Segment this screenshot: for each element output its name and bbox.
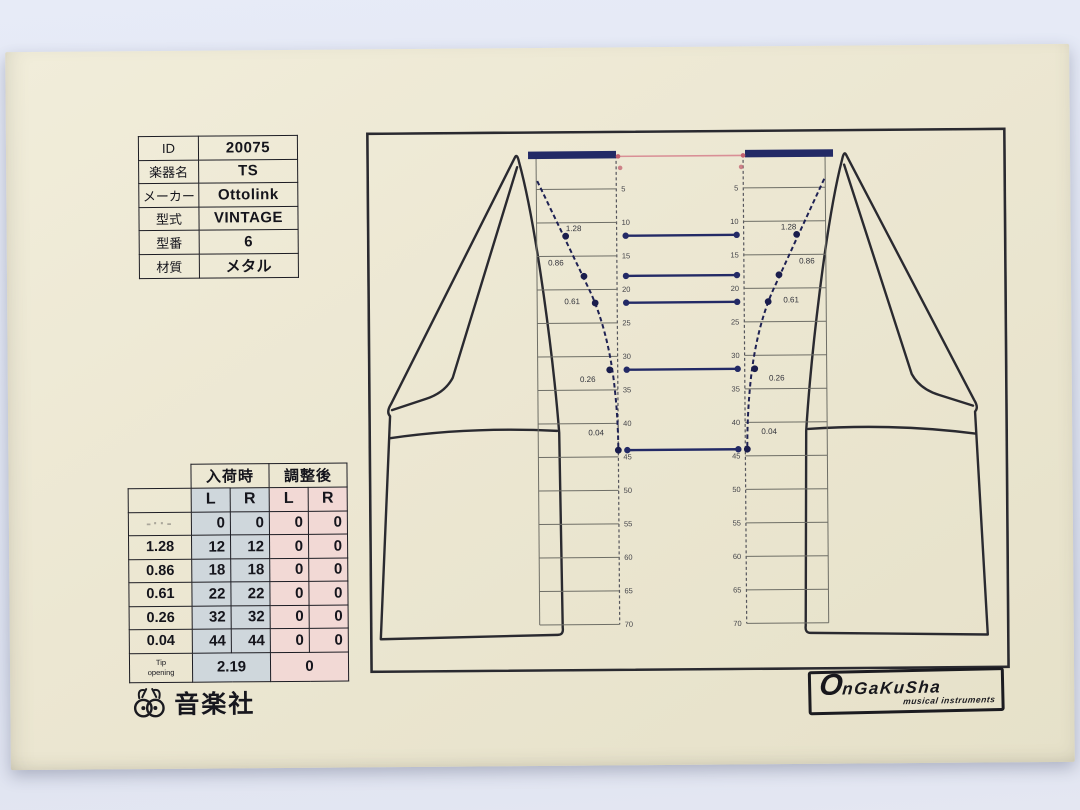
right-ruler-rung (746, 489, 828, 490)
left-gauge-value-label: 0.61 (564, 297, 580, 306)
left-ruler-tick-label: 60 (624, 553, 632, 562)
measurement-span-arrow (626, 302, 737, 303)
right-ruler-tick-label: 65 (733, 585, 741, 594)
right-ruler-rung (747, 623, 829, 624)
right-ruler-tick-label: 45 (732, 451, 740, 460)
info-row: 型式VINTAGE (139, 206, 298, 231)
gauge-label-cell: 0.26 (129, 606, 192, 630)
right-ruler-rung (746, 589, 828, 590)
measure-row: 0.04444400 (129, 628, 348, 653)
left-ruler-tick-label: 40 (623, 419, 631, 428)
measure-value-cell: 0 (269, 511, 308, 535)
info-label: 型番 (139, 230, 199, 254)
measure-row: 0.86181800 (129, 558, 348, 583)
span-arrow-end (734, 299, 740, 305)
tip-opening-label: Tipopening (129, 653, 192, 682)
right-gauge-point (744, 446, 751, 453)
left-ruler-tick-label: 20 (622, 285, 630, 294)
left-ruler-tick-label: 5 (621, 184, 625, 193)
right-gauge-point (793, 231, 800, 238)
right-mouthpiece-beak-line (844, 164, 973, 407)
measure-value-cell: 32 (231, 605, 270, 629)
measure-value-cell: 0 (308, 534, 347, 558)
measure-value-cell: 32 (192, 605, 231, 629)
right-ruler-tick-label: 15 (730, 250, 738, 259)
info-label: ID (138, 136, 198, 160)
right-gauge-value-label: 0.04 (761, 427, 777, 436)
facing-curve-diagram: 5510101515202025253030353540404545505055… (366, 127, 1010, 673)
left-ruler-rung (537, 323, 617, 324)
right-ruler-tick-label: 50 (732, 485, 740, 494)
ongakusha-jp-logo: 音楽社 (130, 684, 255, 721)
measure-value-cell: 0 (309, 558, 348, 582)
info-label: 材質 (139, 254, 199, 278)
right-mouthpiece-body-line (808, 426, 975, 435)
mouthpiece-info-table: ID20075楽器名TSメーカーOttolink型式VINTAGE型番6材質メタ… (138, 135, 299, 279)
left-ruler-rung (537, 289, 617, 290)
measure-value-cell: 0 (269, 534, 308, 558)
span-arrow-end (623, 273, 629, 279)
mouthpiece-diagram-svg: 5510101515202025253030353540404545505055… (366, 127, 1010, 673)
gauge-label-cell: 0.04 (129, 629, 192, 653)
tip-opening-row: Tipopening2.190 (129, 652, 348, 683)
group-header-adjusted: 調整後 (269, 463, 347, 488)
right-ruler-rung (745, 355, 827, 356)
right-ruler-tick-label: 55 (733, 518, 741, 527)
left-mouthpiece-beak-line (390, 167, 519, 410)
right-ruler-rung (745, 422, 827, 423)
subheader-cell: R (230, 488, 269, 512)
tip-opening-marker (618, 166, 623, 171)
info-row: 型番6 (139, 229, 298, 254)
info-label: 楽器名 (139, 160, 199, 184)
right-ruler-tick-label: 40 (732, 418, 740, 427)
span-arrow-end (735, 446, 741, 452)
left-facing-curve (537, 180, 618, 450)
measure-value-cell: 0 (309, 628, 348, 652)
left-ruler-rung (536, 189, 616, 190)
measure-value-cell: 0 (308, 511, 347, 535)
measure-value-cell: 44 (192, 629, 231, 653)
music-notes-logo-icon (130, 685, 168, 721)
right-gauge-value-label: 0.61 (783, 295, 799, 304)
measure-value-cell: 44 (231, 629, 270, 653)
facing-measurement-table: 入荷時調整後LRLR-··-00001.281212000.861818000.… (127, 463, 349, 683)
info-label: メーカー (139, 183, 199, 207)
info-value: 6 (199, 229, 298, 253)
left-ruler-rung (539, 490, 619, 491)
measure-value-cell: 22 (192, 582, 231, 606)
left-gauge-value-label: 1.28 (566, 224, 582, 233)
left-ruler-rung (540, 624, 620, 625)
measure-value-cell: 12 (191, 535, 230, 559)
left-ruler-tick-label: 25 (622, 318, 630, 327)
right-gauge-value-label: 0.26 (769, 373, 785, 382)
right-ruler-rung (745, 388, 827, 389)
company-name-jp: 音楽社 (174, 684, 255, 721)
left-tip-rail-bar (528, 151, 616, 159)
measure-value-cell: 0 (270, 581, 309, 605)
gauge-label-cell: -··- (128, 512, 191, 536)
info-value: Ottolink (199, 182, 298, 206)
subheader-cell: R (308, 487, 347, 511)
info-table-body: ID20075楽器名TSメーカーOttolink型式VINTAGE型番6材質メタ… (138, 135, 298, 278)
left-gauge-point (581, 273, 588, 280)
left-mouthpiece-outline (377, 156, 563, 640)
measure-value-cell: 12 (230, 535, 269, 559)
measure-value-cell: 0 (230, 511, 269, 535)
left-ruler-rung (539, 591, 619, 592)
right-ruler-rung (746, 556, 828, 557)
right-ruler-rung (745, 455, 827, 456)
span-arrow-end (623, 366, 629, 372)
left-ruler-tick-label: 15 (622, 251, 630, 260)
span-arrow-end (624, 447, 630, 453)
left-ruler-tick-label: 10 (622, 218, 630, 227)
span-arrow-end (734, 366, 740, 372)
left-gauge-value-label: 0.26 (580, 375, 596, 384)
tip-opening-line (618, 155, 741, 156)
right-ruler-tick-label: 35 (731, 384, 739, 393)
info-value: VINTAGE (199, 206, 298, 230)
left-ruler-rung (538, 457, 618, 458)
left-ruler-rung (539, 557, 619, 558)
right-ruler-tick-label: 20 (731, 284, 739, 293)
empty-corner-cell (128, 464, 191, 488)
left-gauge-point (562, 233, 569, 240)
measure-header-row: 入荷時調整後 (128, 463, 347, 489)
left-ruler-tick-label: 70 (625, 620, 633, 629)
info-row: 材質メタル (139, 253, 298, 278)
gauge-label-cell: 1.28 (128, 535, 191, 559)
measure-value-cell: 22 (231, 582, 270, 606)
measure-value-cell: 18 (192, 558, 231, 582)
right-ruler-rung (744, 321, 826, 322)
info-row: 楽器名TS (139, 159, 298, 184)
left-ruler-rung (537, 256, 617, 257)
gauge-label-cell: 0.86 (129, 559, 192, 583)
right-ruler-rung (744, 221, 826, 222)
span-arrow-end (622, 232, 628, 238)
right-ruler-tick-label: 10 (730, 217, 738, 226)
left-ruler-rung (539, 524, 619, 525)
span-arrow-end (734, 272, 740, 278)
measure-value-cell: 0 (270, 558, 309, 582)
right-ruler-rung (746, 522, 828, 523)
left-gauge-point (606, 366, 613, 373)
left-ruler-tick-label: 45 (623, 452, 631, 461)
right-facing-curve (745, 179, 826, 449)
left-ruler-rung (538, 423, 618, 424)
measure-value-cell: 0 (191, 511, 230, 535)
right-ruler-tick-label: 5 (734, 183, 738, 192)
tip-opening-arrival: 2.19 (192, 652, 270, 682)
info-value: 20075 (198, 135, 297, 159)
info-value: メタル (199, 253, 298, 278)
left-gauge-value-label: 0.04 (588, 428, 604, 437)
measurement-span-arrow (626, 275, 737, 276)
measure-value-cell: 18 (231, 558, 270, 582)
gauge-label-cell: 0.61 (129, 582, 192, 606)
measure-row: 0.61222200 (129, 581, 348, 606)
info-row: メーカーOttolink (139, 182, 298, 207)
document-paper: ID20075楽器名TSメーカーOttolink型式VINTAGE型番6材質メタ… (5, 44, 1075, 770)
measure-value-cell: 0 (309, 581, 348, 605)
right-ruler-tick-label: 70 (733, 619, 741, 628)
tip-opening-marker (739, 165, 744, 170)
measure-subheader-row: LRLR (128, 487, 347, 512)
left-ruler-tick-label: 50 (624, 486, 632, 495)
tip-opening-marker (616, 154, 621, 159)
left-ruler-tick-label: 65 (624, 586, 632, 595)
info-label: 型式 (139, 207, 199, 231)
left-ruler-tick-label: 35 (623, 385, 631, 394)
measure-row: 1.28121200 (128, 534, 347, 559)
right-ruler-rung (744, 254, 826, 255)
left-gauge-value-label: 0.86 (548, 258, 564, 267)
left-gauge-point (615, 447, 622, 454)
group-header-arrival: 入荷時 (191, 464, 269, 489)
right-gauge-value-label: 0.86 (799, 256, 815, 265)
measure-table-body: 入荷時調整後LRLR-··-00001.281212000.861818000.… (128, 463, 349, 682)
empty-label-cell (128, 488, 191, 512)
diagram-border (367, 129, 1008, 672)
subheader-cell: L (191, 488, 230, 512)
right-ruler-rung (743, 187, 825, 188)
right-ruler-tick-label: 25 (731, 317, 739, 326)
photo-background: ID20075楽器名TSメーカーOttolink型式VINTAGE型番6材質メタ… (0, 0, 1080, 810)
right-gauge-point (765, 298, 772, 305)
right-gauge-value-label: 1.28 (781, 222, 797, 231)
left-ruler-rung (537, 222, 617, 223)
right-ruler-tick-label: 30 (731, 351, 739, 360)
left-ruler-tick-label: 30 (623, 352, 631, 361)
left-mouthpiece-body-line (390, 429, 557, 438)
measure-value-cell: 0 (270, 628, 309, 652)
right-ruler-rung (744, 288, 826, 289)
info-value: TS (199, 159, 298, 183)
measure-value-cell: 0 (309, 605, 348, 629)
measurement-span-arrow (626, 235, 737, 236)
measure-row: -··-0000 (128, 511, 347, 536)
right-gauge-point (776, 271, 783, 278)
measurement-span-arrow (627, 449, 738, 450)
measure-row: 0.26323200 (129, 605, 348, 630)
subheader-cell: L (269, 487, 308, 511)
left-ruler-rung (538, 390, 618, 391)
measurement-span-arrow (627, 369, 738, 370)
left-gauge-point (592, 300, 599, 307)
measure-value-cell: 0 (270, 605, 309, 629)
right-ruler-tick-label: 60 (733, 552, 741, 561)
left-ruler-rung (538, 356, 618, 357)
right-mouthpiece-outline (802, 152, 988, 636)
tip-opening-adjusted: 0 (270, 652, 348, 682)
ongakusha-en-logo: OnGaKuSha musical instruments (808, 667, 1005, 715)
right-gauge-point (751, 365, 758, 372)
info-row: ID20075 (138, 135, 297, 160)
right-tip-rail-bar (745, 149, 833, 157)
span-arrow-end (623, 299, 629, 305)
span-arrow-end (733, 232, 739, 238)
left-ruler-tick-label: 55 (624, 519, 632, 528)
tip-opening-marker (741, 153, 746, 158)
